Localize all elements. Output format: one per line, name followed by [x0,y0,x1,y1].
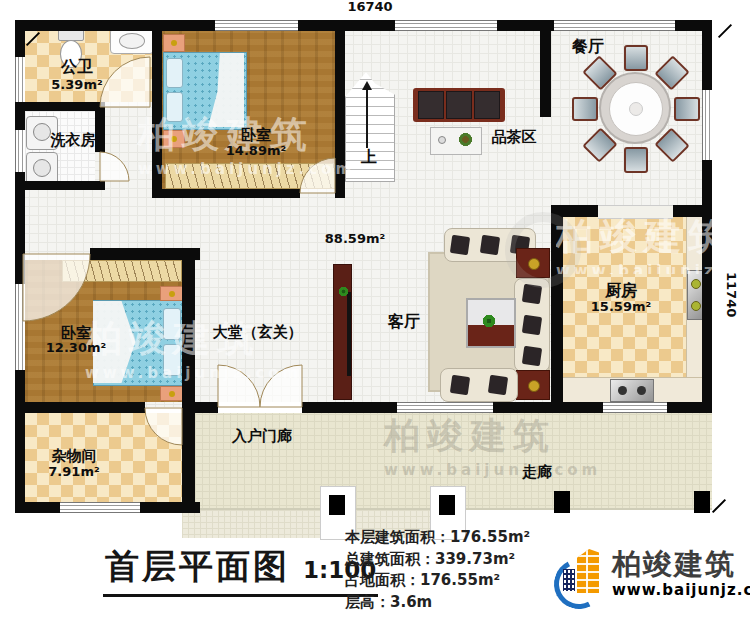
bedroom2-wardrobe [62,260,182,282]
living-coffee-table [466,298,516,348]
living-end-table [516,370,550,400]
window [603,402,667,413]
wall-segment [15,248,23,260]
window [15,130,25,172]
sofa-pillow [450,375,470,395]
wall-segment [335,20,345,198]
bedroom2-pillow [163,344,181,376]
stat-line: 占地面积：176.55m² [345,570,530,592]
wall-segment [493,402,603,413]
sink-basin [119,33,145,49]
dining-chair [572,97,598,121]
bedroom1-pillow [166,92,183,122]
wall-segment [15,102,100,111]
washer-2-door [33,159,51,177]
room-area-kitchen: 15.59m² [590,300,652,314]
stat-line: 总建筑面积：339.73m² [345,549,530,571]
stat-value: 3.6m [390,593,432,611]
room-label-storage: 杂物间 [42,448,106,465]
bedroom2-pillow [163,308,181,340]
wall-segment [152,20,162,198]
page-title: 首层平面图 [105,546,290,586]
bedroom1-nightstand [163,130,185,148]
wall-segment [702,160,712,413]
tv-screen [347,292,351,376]
wall-segment [152,189,300,198]
room-area-bedroom1: 14.89m² [218,144,294,158]
wall-segment [302,402,397,413]
porch-pillar [439,495,455,515]
wall-segment [15,402,145,413]
brand-logo-icon [554,543,606,601]
wall-segment [15,20,25,57]
tea-table-flower [458,132,473,147]
wall-segment [702,20,712,90]
brand-name: 柏竣建筑 [612,545,736,585]
room-label-kitchen: 厨房 [596,282,646,300]
window [702,90,712,160]
entrance-door-gap [218,402,302,413]
dimension-height: 11740 [718,258,738,332]
sink-drain [691,279,701,289]
stat-value: 176.55m² [450,528,530,546]
logo-navy-block-icon [563,569,575,591]
bedroom2-nightstand [160,286,184,301]
porch-post [694,491,710,513]
window [15,57,25,102]
watermark-ring [505,212,581,288]
kitchen-step [598,205,673,219]
wall-segment [298,20,395,31]
dining-table [599,72,671,144]
title-block: 首层平面图 1:100 [103,544,378,597]
wall-segment [15,20,215,31]
bedroom1-pillow [166,58,183,88]
bedroom2-nightstand [160,386,184,401]
wall-segment [667,402,712,413]
porch-post [554,491,570,513]
room-area-storage: 7.91m² [42,465,106,479]
stat-value: 176.55m² [420,571,500,589]
plant-icon [338,286,349,297]
wall-segment [540,20,551,117]
stairs-arrow-head [362,81,372,90]
wall-segment [673,205,712,217]
bedroom1-wardrobe [165,163,337,189]
wall-segment [182,248,195,513]
hall-area-label: 88.59m² [324,232,386,246]
room-label-corridor: 走廊 [514,464,560,481]
dimension-tick [712,499,726,513]
tea-sofa [413,88,505,122]
stat-line: 本层建筑面积：176.55m² [345,527,530,549]
bedroom1-nightstand [163,34,185,52]
tea-sofa-seat [474,91,500,119]
room-area-public-bath: 5.39m² [45,78,109,92]
dimension-tick [718,24,732,38]
window [215,20,298,31]
sofa-pillow [488,375,508,395]
wall-segment [15,181,105,190]
window [395,20,497,31]
sofa-pillow [522,315,542,335]
stairs-up-label: 上 [358,148,380,166]
stat-label: 占地面积： [345,571,420,589]
sofa-pillow [480,235,500,255]
tea-table [430,127,482,155]
dining-chair [624,147,648,173]
sink-drain [691,301,701,311]
stairs-arrow-line [366,90,368,148]
tea-sofa-seat [418,91,444,119]
stove-burner [618,386,627,395]
stat-value: 339.73m² [435,550,515,568]
room-label-living: 客厅 [382,313,426,331]
stat-line: 层高：3.6m [345,592,530,614]
room-label-lobby: 大堂（玄关） [200,324,315,341]
living-sofa-bottom [440,368,518,402]
brand-url: www.baijunjz.com [612,581,750,599]
room-label-public-bath: 公卫 [45,58,109,76]
living-sofa-right [514,278,550,372]
stove-burner [637,386,646,395]
logo-orange-building-icon [577,549,599,593]
room-label-laundry: 洗衣房 [38,132,108,149]
stat-label: 层高： [345,593,390,611]
room-label-dining: 餐厅 [556,38,620,56]
stat-label: 本层建筑面积： [345,528,450,546]
tea-sofa-seat [446,91,472,119]
stats-block: 本层建筑面积：176.55m² 总建筑面积：339.73m² 占地面积：176.… [345,527,530,613]
window [554,20,675,31]
room-label-tea-area: 品茶区 [476,129,552,146]
tea-table-cups [438,136,446,144]
window [397,402,493,413]
dining-table-center [629,102,643,116]
porch-pillar [329,495,345,515]
dining-chair [674,97,700,121]
room-label-entry-porch: 入户门廊 [224,428,300,445]
dining-chair [624,45,648,71]
window [15,284,25,370]
wall-segment [15,370,25,513]
kitchen-stove [610,379,654,402]
brand-logo: 柏竣建筑 www.baijunjz.com [554,541,748,605]
stat-label: 总建筑面积： [345,550,435,568]
wall-segment [15,502,60,513]
sofa-pillow [450,235,470,255]
floor-plan-canvas: 柏竣建筑 www.baijunjz.com 柏竣建筑 www.baijunjz.… [0,0,750,617]
dimension-width: 16740 [325,0,415,14]
room-label-bedroom1: 卧室 [224,127,288,144]
sofa-pillow [522,345,542,365]
window [60,502,140,513]
room-area-bedroom2: 12.30m² [42,341,110,355]
plant-icon [481,313,497,329]
kitchen-sink [687,270,703,320]
